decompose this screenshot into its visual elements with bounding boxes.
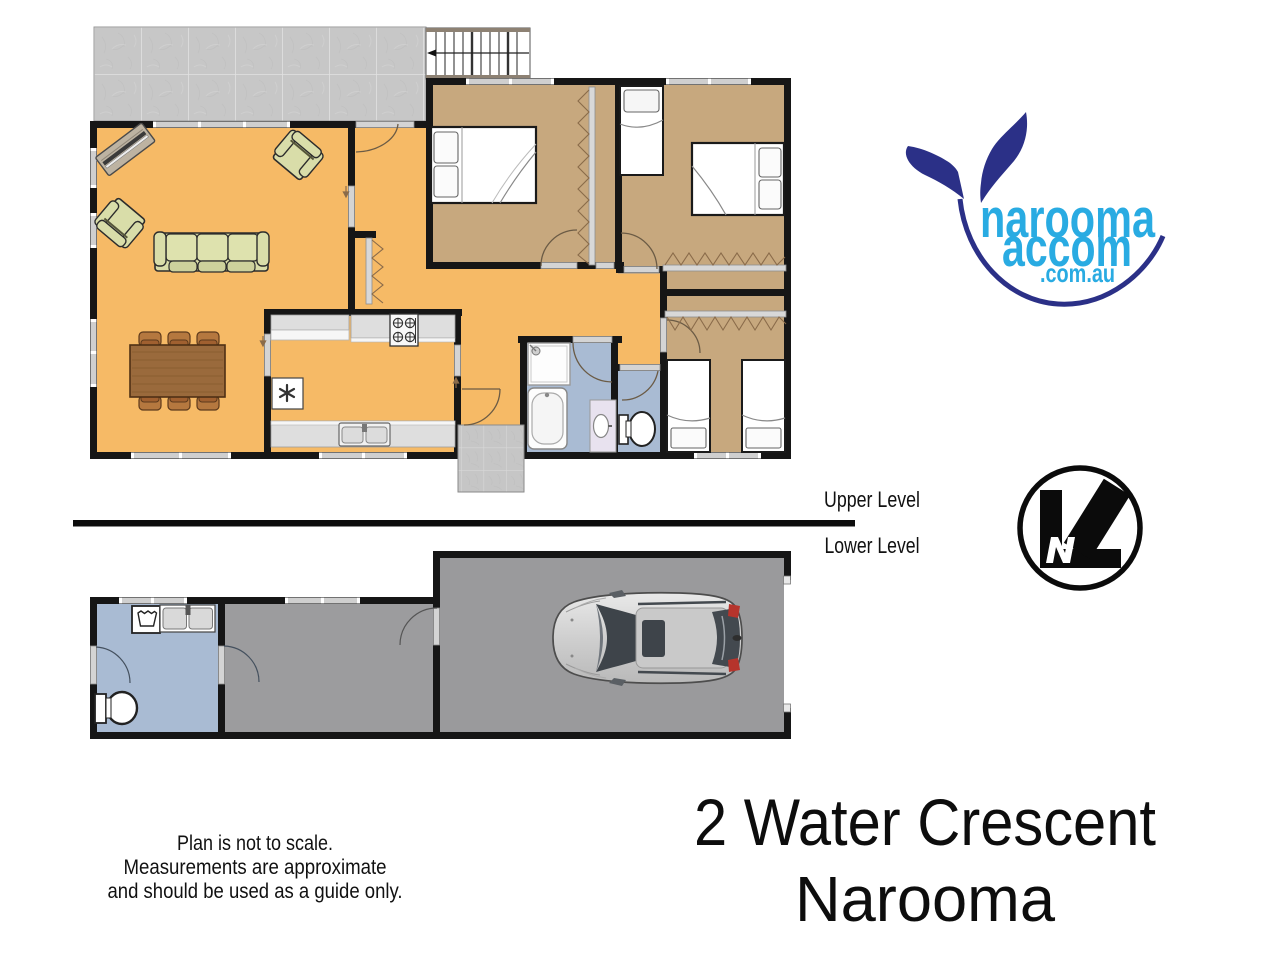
svg-text:2 Water Crescent: 2 Water Crescent <box>694 785 1156 859</box>
svg-text:.com.au: .com.au <box>1040 258 1115 288</box>
svg-text:Lower Level: Lower Level <box>825 533 920 558</box>
svg-text:Plan is not to scale.: Plan is not to scale. <box>177 831 333 855</box>
svg-text:and should be used as a guide: and should be used as a guide only. <box>108 879 403 903</box>
svg-text:Measurements are approximate: Measurements are approximate <box>124 855 387 879</box>
svg-text:Narooma: Narooma <box>795 863 1055 935</box>
svg-text:Upper Level: Upper Level <box>824 487 920 512</box>
